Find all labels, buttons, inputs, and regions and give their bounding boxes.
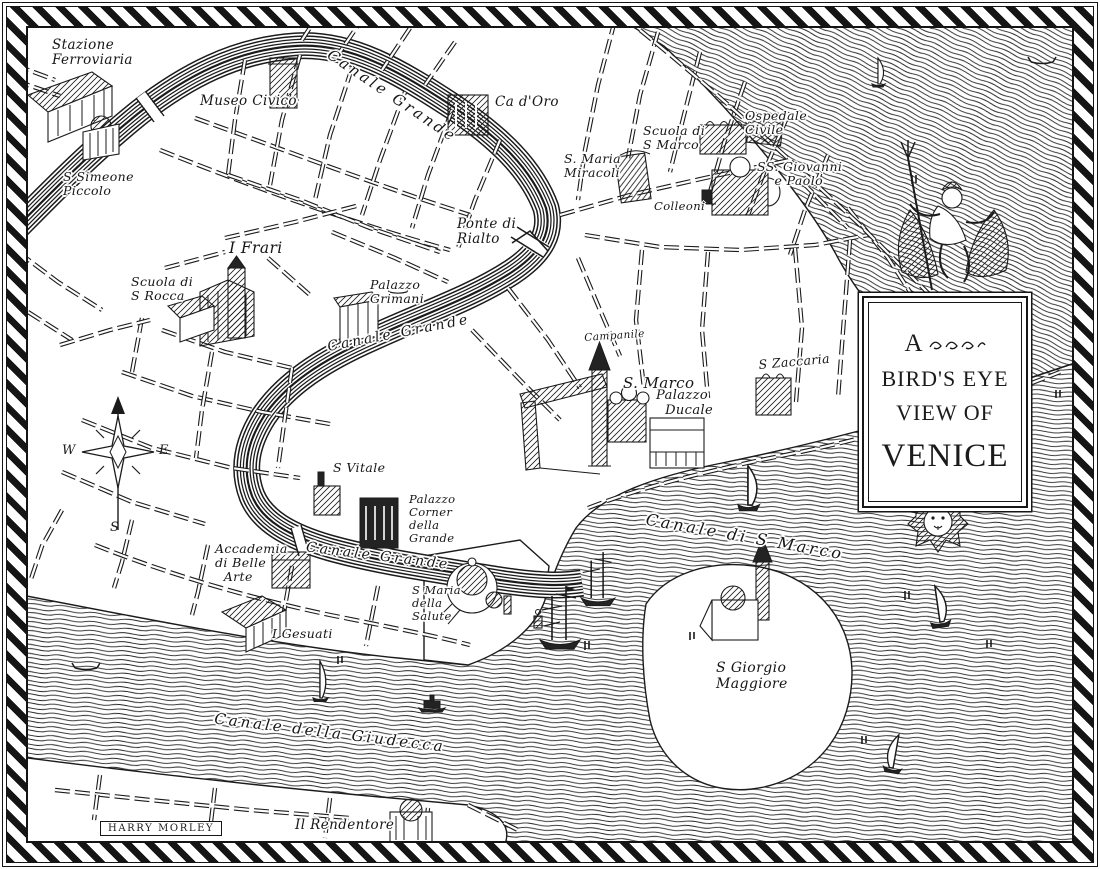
label-s-maria-miracoli: S. Maria Miracoli [564,152,621,180]
cartographer-signature: HARRY MORLEY [100,821,222,836]
label-ospedale-civile: Ospedale Civile [745,109,807,137]
label-palazzo-grimani: Palazzo Grimani [370,278,424,306]
venice-map-page: .st{stroke:#1b1b1b;stroke-width:4.4;fill… [0,0,1100,869]
label-il-rendentore: Il Rendentore [295,818,394,833]
compass-south-label: S [110,520,119,535]
label-museo-civico: Museo Civico [200,94,297,109]
label-canale-della-giudecca: Canale della Giudecca [213,710,446,755]
title-cartouche: A BIRD'S EYE VIEW OF VENICE [862,296,1028,508]
compass-west-label: W [62,443,75,458]
wave-ornament-icon [928,330,986,358]
label-canale-grande-middle: Canale Grande [326,312,471,355]
label-i-frari: I Frari [229,240,283,257]
label-ss-giovanni-e-paolo: SS. Giovanni e Paolo [757,160,842,188]
map-paper: .st{stroke:#1b1b1b;stroke-width:4.4;fill… [26,26,1074,843]
label-palazzo-corner-della-grande: Palazzo Corner della Grande [409,493,455,545]
label-colleoni: Colleoni [654,200,705,213]
label-accademia-di-belle-arte: Accademia di Belle Arte [215,542,288,584]
label-ponte-di-rialto: Ponte di Rialto [457,217,516,247]
label-s-vitale: S Vitale [333,461,385,475]
title-line-venice: VENICE [882,438,1009,475]
label-canale-grande-upper: Canale Grande [324,46,460,145]
label-scuola-di-s-rocca: Scuola di S Rocca [131,275,193,303]
label-s-giorgio-maggiore: S Giorgio Maggiore [716,661,788,692]
label-campanile: Campanile [584,329,645,345]
title-line-view-of: VIEW OF [896,400,994,426]
label-canale-grande-lower: Canale Grande [305,540,451,573]
label-stazione-ferroviaria: Stazione Ferroviaria [52,38,133,68]
title-line-birds-eye: BIRD'S EYE [881,366,1008,392]
label-s-maria-della-salute: S Maria della Salute [412,584,461,623]
label-canale-di-s-marco: Canale di S Marco [644,511,845,564]
label-scuola-di-s-marco: Scuola di S Marco [643,124,705,152]
label-s-simeone-piccolo: S Simeone Piccolo [63,170,134,198]
label-s-zaccaria: S Zaccaria [758,352,831,372]
label-ca-doro: Ca d'Oro [495,95,559,110]
compass-east-label: E [159,443,169,458]
label-i-gesuati: I Gesuati [272,627,333,641]
labels-layer: A BIRD'S EYE VIEW OF VENICE W E S HARRY … [26,26,1074,843]
title-line-a: A [904,330,922,358]
label-palazzo-ducale: Palazzo Ducale [656,389,713,418]
